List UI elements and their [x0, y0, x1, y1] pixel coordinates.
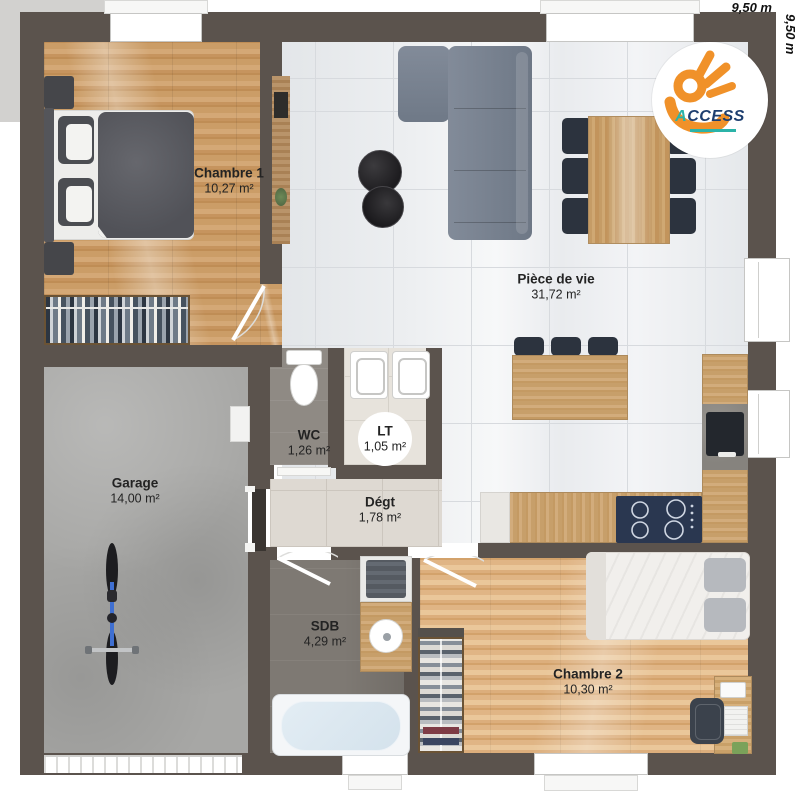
toilet-tank: [286, 350, 322, 365]
window-living-top: [546, 13, 694, 42]
plant-icon: [275, 188, 287, 206]
duvet-chambre1: [98, 112, 194, 238]
floor-plan: Chambre 1 10,27 m² Pièce de vie 31,72 m²…: [0, 0, 800, 800]
desk-chair: [690, 698, 724, 744]
window-chambre1: [110, 13, 202, 42]
room-label-degt: Dégt 1,78 m²: [359, 495, 401, 526]
window-sdb: [342, 753, 408, 775]
door-kitchen-right: [744, 390, 790, 458]
washbasin: [369, 619, 403, 653]
dining-chair-5: [666, 158, 696, 194]
dining-chair-6: [666, 198, 696, 234]
coffee-table-2: [362, 186, 404, 228]
wall-chambre1-garage: [20, 345, 282, 367]
wall-wc-lt: [328, 348, 344, 468]
access-logo: ACCESS: [652, 42, 768, 158]
cooktop: [616, 496, 702, 543]
pillow-white-1: [66, 124, 92, 160]
bed-chambre2-throw: [586, 552, 606, 640]
pillow-chambre2-1: [704, 558, 746, 592]
bar-stool-2: [551, 337, 581, 356]
window-living-right-mullion: [758, 262, 759, 338]
bed-chambre1-headboard: [44, 108, 54, 242]
floor-garage: [44, 367, 248, 755]
garage-door: [44, 755, 242, 773]
nightstand-1: [44, 76, 74, 109]
wall-lt-degt: [336, 465, 442, 479]
door-hinge-top: [245, 486, 255, 492]
wall-garage-sdb: [248, 551, 270, 755]
nightstand-2: [44, 242, 74, 275]
sofa-main: [448, 46, 532, 240]
bathtub: [272, 694, 410, 756]
door-swing-chambre2: [418, 556, 484, 596]
wardrobe-chambre1: [44, 295, 190, 345]
toilet-bowl: [290, 364, 318, 406]
room-label-garage: Garage 14,00 m²: [110, 476, 159, 507]
kitchen-counter-white-section: [480, 492, 510, 543]
garage-shelf: [230, 406, 250, 442]
desk-papers: [724, 706, 748, 736]
pillow-white-2: [66, 186, 92, 222]
room-label-wc: WC 1,26 m²: [288, 428, 330, 459]
wall-wc-degt-stub: [248, 465, 274, 479]
window-sill-chambre1: [104, 0, 208, 14]
door-kitchen-right-line: [758, 394, 759, 454]
dimension-right: 9,50 m: [783, 14, 798, 74]
wall-left: [20, 12, 44, 775]
sink-faucet: [718, 452, 736, 457]
wardrobe-chambre2-top: [418, 628, 464, 637]
room-label-sdb: SDB 4,29 m²: [304, 619, 346, 650]
room-label-lt: LT 1,05 m²: [364, 424, 406, 455]
kitchen-island: [512, 355, 628, 420]
door-swing-chambre1: [225, 280, 285, 346]
pillow-chambre2-2: [704, 598, 746, 632]
dimension-top: 9,50 m: [690, 0, 772, 15]
bar-stool-3: [588, 337, 618, 356]
door-hinge-bottom: [245, 543, 255, 552]
wardrobe-chambre2: [418, 637, 464, 753]
window-sill-living: [540, 0, 700, 14]
window-sill-chambre2: [544, 775, 638, 791]
door-garage-entrance: [252, 489, 266, 551]
window-chambre2: [534, 753, 648, 775]
sofa-chaise: [398, 46, 450, 122]
bar-stool-1: [514, 337, 544, 356]
washing-machine-2: [392, 351, 430, 399]
tv-cabinet-item: [274, 92, 288, 118]
laptop: [720, 682, 746, 698]
window-living-right: [744, 258, 790, 342]
cooktop-burners: [616, 496, 702, 543]
window-sill-sdb: [348, 775, 402, 790]
door-swing-sdb: [272, 552, 338, 594]
desk-pad: [732, 742, 748, 754]
washing-machine-1: [350, 351, 388, 399]
bicycle-icon: [82, 538, 142, 688]
door-wc: [277, 467, 331, 476]
room-label-chambre1: Chambre 1 10,27 m²: [194, 166, 264, 197]
ok-hand-icon: [652, 42, 768, 158]
access-logo-tagline-bar: [690, 129, 736, 132]
access-logo-text: ACCESS: [652, 108, 768, 126]
room-label-chambre2: Chambre 2 10,30 m²: [553, 667, 623, 698]
kitchen-sink: [706, 412, 744, 456]
towel-stack: [366, 560, 406, 598]
room-label-piece-de-vie: Pièce de vie 31,72 m²: [517, 272, 594, 303]
floor-degt: [270, 479, 442, 547]
